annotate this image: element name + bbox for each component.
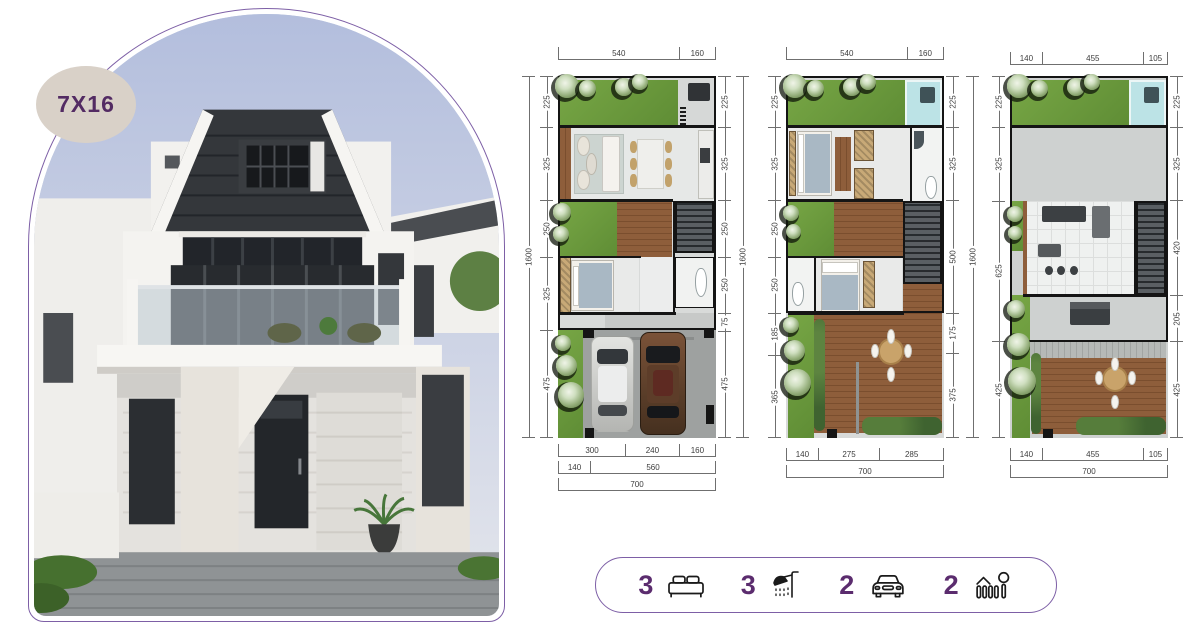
dim-label: 325 (542, 285, 551, 302)
dim-segment: 105 (1143, 448, 1168, 461)
bathroom-count: 3 (741, 570, 756, 601)
dim-label: 455 (1043, 449, 1143, 460)
dim-segment: 250 (718, 257, 731, 313)
dim-label: 105 (1144, 53, 1167, 64)
dim-label: 240 (626, 445, 679, 456)
dim-label: 325 (994, 156, 1003, 173)
dim-segment: 375 (946, 353, 959, 438)
floor-plan-second-drawing (786, 76, 944, 438)
right-dimension-column: 225325420205425 (1170, 76, 1183, 438)
dim-label: 700 (787, 466, 943, 477)
overall-height-dim: 1600 (522, 76, 535, 438)
dim-segment: 225 (718, 76, 731, 127)
dim-segment: 250 (768, 200, 781, 256)
dim-segment: 325 (992, 127, 1005, 201)
dim-segment: 325 (540, 257, 553, 330)
dim-segment: 140 (1010, 52, 1042, 65)
dim-label: 225 (770, 93, 779, 110)
dim-label: 225 (1172, 93, 1181, 110)
bottom-dimension-rows: 140455105700 (1010, 448, 1168, 478)
dim-segment: 455 (1042, 52, 1143, 65)
dim-segment: 225 (768, 76, 781, 127)
dim-segment: 700 (558, 478, 716, 491)
dim-label: 225 (542, 93, 551, 110)
bottom-dimension-rows: 140275285700 (786, 448, 944, 478)
dim-label: 250 (770, 277, 779, 294)
dim-segment: 250 (718, 200, 731, 256)
dimension-row: 140455105 (1010, 448, 1168, 461)
dim-label: 275 (819, 449, 880, 460)
dim-label: 700 (1011, 466, 1167, 477)
size-badge: 7X16 (36, 66, 136, 143)
roof-deck (814, 313, 941, 432)
dim-segment: 425 (992, 341, 1005, 438)
dim-label: 75 (720, 316, 729, 329)
dim-label: 500 (948, 248, 957, 265)
dimension-row: 700 (558, 478, 716, 491)
dim-label: 140 (559, 462, 590, 473)
dim-label: 325 (770, 155, 779, 172)
dim-segment: 140 (1010, 448, 1042, 461)
feature-carports: 2 (839, 568, 911, 602)
shower-icon (767, 568, 807, 602)
brochure-page: 7X16 1600 225325250325475 540160 (0, 0, 1200, 633)
dim-label: 375 (948, 387, 957, 404)
car-icon (865, 568, 911, 602)
dim-segment: 240 (625, 444, 679, 457)
dim-label: 300 (559, 445, 625, 456)
dim-segment: 325 (1170, 127, 1183, 200)
garden-count: 2 (944, 570, 959, 601)
hedge (1031, 353, 1041, 434)
left-dimension-column: 225325625425 (992, 76, 1005, 438)
dim-segment: 185 (768, 313, 781, 355)
dim-label: 105 (1144, 449, 1167, 460)
dim-segment: 140 (786, 448, 818, 461)
dim-label: 325 (1172, 156, 1181, 173)
dim-segment: 275 (818, 448, 880, 461)
dim-label: 1600 (738, 246, 747, 268)
dim-segment: 175 (946, 313, 959, 353)
dim-label: 625 (994, 263, 1003, 280)
feature-gardens: 2 (944, 568, 1014, 602)
dim-segment: 455 (1042, 448, 1143, 461)
bed-icon (664, 568, 708, 602)
car-brown (640, 332, 686, 435)
dim-segment: 420 (1170, 200, 1183, 294)
dim-label: 425 (994, 381, 1003, 398)
dim-label: 160 (680, 48, 715, 59)
dim-label: 1600 (524, 246, 533, 268)
car-silver (591, 336, 634, 432)
dim-label: 225 (994, 93, 1003, 110)
dimension-row: 300240160 (558, 444, 716, 457)
dim-segment: 365 (768, 355, 781, 438)
top-dimension-row: 140455105 (1010, 52, 1168, 65)
dim-label: 540 (559, 48, 679, 59)
dim-label: 1600 (968, 246, 977, 268)
dim-label: 140 (787, 449, 818, 460)
dim-label: 475 (720, 376, 729, 393)
dim-label: 420 (1172, 239, 1181, 256)
dim-label: 140 (1011, 449, 1042, 460)
right-dimension-column: 225325500175375 (946, 76, 959, 438)
dim-segment: 205 (1170, 295, 1183, 342)
dim-segment: 325 (768, 127, 781, 200)
dim-segment: 225 (1170, 76, 1183, 127)
dim-label: 325 (542, 156, 551, 173)
dimension-row: 140275285 (786, 448, 944, 461)
feature-bathrooms: 3 (741, 568, 807, 602)
dim-segment: 75 (718, 313, 731, 331)
right-dimension-column: 22532525025075475 (718, 76, 731, 438)
dim-label: 455 (1043, 53, 1143, 64)
dim-segment: 225 (540, 76, 553, 127)
dim-segment: 160 (679, 47, 716, 60)
dim-segment: 500 (946, 200, 959, 312)
bottom-dimension-rows: 300240160140560700 (558, 444, 716, 491)
dim-label: 250 (720, 220, 729, 237)
dim-segment: 140 (558, 461, 590, 474)
hedge (814, 319, 824, 431)
dim-label: 175 (948, 324, 957, 341)
garden-icon (970, 568, 1014, 602)
dim-label: 250 (720, 277, 729, 294)
floor-plan-rooftop-drawing (1010, 76, 1168, 438)
dim-segment: 300 (558, 444, 625, 457)
dim-label: 160 (680, 445, 715, 456)
dim-segment: 225 (946, 76, 959, 127)
top-dimension-row: 540160 (786, 47, 944, 60)
bedroom-count: 3 (638, 570, 653, 601)
top-dimension-row: 540160 (558, 47, 716, 60)
dim-segment: 160 (679, 444, 716, 457)
left-dimension-column: 225325250250185365 (768, 76, 781, 438)
dim-segment: 160 (907, 47, 944, 60)
dim-label: 425 (1172, 381, 1181, 398)
dim-segment: 105 (1143, 52, 1168, 65)
carport-count: 2 (839, 570, 854, 601)
dim-label: 225 (948, 93, 957, 110)
dim-label: 140 (1011, 53, 1042, 64)
floor-plan-ground-drawing (558, 76, 716, 438)
dim-segment: 325 (946, 127, 959, 200)
dim-label: 250 (770, 220, 779, 237)
dim-segment: 540 (558, 47, 679, 60)
dim-segment: 625 (992, 201, 1005, 341)
bushes (862, 417, 942, 434)
dim-label: 365 (770, 388, 779, 405)
dim-segment: 700 (1010, 465, 1168, 478)
dimension-row: 700 (786, 465, 944, 478)
dim-label: 325 (948, 156, 957, 173)
dim-label: 560 (591, 462, 715, 473)
dim-label: 475 (542, 375, 551, 392)
feature-bedrooms: 3 (638, 568, 708, 602)
dim-label: 700 (559, 479, 715, 490)
size-badge-label: 7X16 (57, 91, 115, 118)
dim-segment: 250 (768, 257, 781, 313)
dim-label: 540 (787, 48, 907, 59)
dim-segment: 700 (786, 465, 944, 478)
dim-label: 325 (720, 155, 729, 172)
dim-segment: 475 (718, 331, 731, 438)
dim-segment: 225 (992, 76, 1005, 127)
dim-segment: 560 (590, 461, 716, 474)
dim-segment: 540 (786, 47, 907, 60)
dim-segment: 285 (879, 448, 944, 461)
bushes (1076, 417, 1165, 434)
overall-height-dim: 1600 (736, 76, 749, 438)
dim-label: 285 (880, 449, 943, 460)
dimension-row: 140560 (558, 461, 716, 474)
dim-label: 205 (1172, 310, 1181, 327)
dim-label: 250 (542, 221, 551, 238)
dim-segment: 250 (540, 200, 553, 257)
dim-segment: 325 (540, 127, 553, 200)
dim-segment: 475 (540, 330, 553, 438)
overall-height-dim: 1600 (966, 76, 979, 438)
dim-segment: 425 (1170, 341, 1183, 438)
dim-segment: 325 (718, 127, 731, 200)
left-dimension-column: 225325250325475 (540, 76, 553, 438)
dim-label: 225 (720, 93, 729, 110)
dim-label: 160 (908, 48, 943, 59)
dim-label: 185 (770, 326, 779, 343)
feature-bar: 3 3 2 (595, 557, 1057, 613)
dimension-row: 700 (1010, 465, 1168, 478)
